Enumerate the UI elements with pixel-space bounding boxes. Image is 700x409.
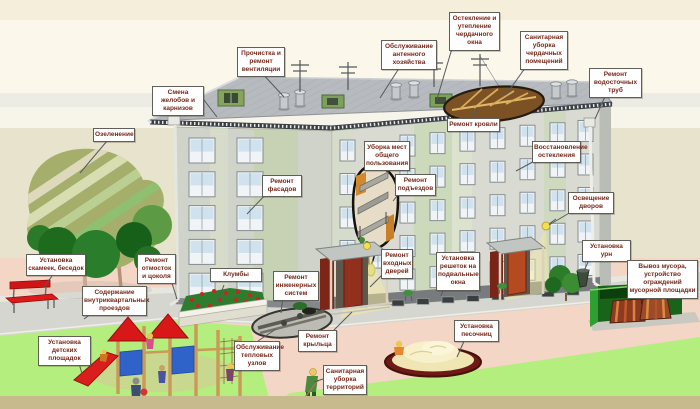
- label-osveshchenie-dvorov: Освещение дворов: [568, 192, 614, 214]
- label-remont-otmostok: Ремонт отмосток и цоколя: [137, 254, 176, 284]
- label-ustanovka-pesochnits: Установка песочниц: [454, 320, 499, 342]
- label-soderzhanie-proezdov: Содержание внутриквартальных проездов: [82, 286, 147, 316]
- label-remont-inzhenernyh: Ремонт инженерных систем: [273, 271, 319, 301]
- label-remont-fasadov: Ремонт фасадов: [262, 175, 302, 197]
- label-ustanovka-skameek: Установка скамеек, беседок: [26, 254, 86, 276]
- label-detskie-ploshchadki: Установка детских площадок: [38, 336, 91, 366]
- label-vyvoz-musora: Вывоз мусора, устройство ограждений мусо…: [627, 260, 698, 299]
- label-remont-podezdov: Ремонт подъездов: [395, 174, 436, 196]
- entrance-lamp: [364, 243, 371, 250]
- label-remont-krovli: Ремонт кровли: [447, 118, 500, 132]
- label-smena-zhelobov: Смена желобов и карнизов: [152, 86, 204, 116]
- yard-lamp: [542, 222, 550, 230]
- label-teplovye-uzly: Обслуживание тепловых узлов: [234, 341, 280, 371]
- gable-dormer: [218, 90, 244, 106]
- label-vodostochnye-truby: Ремонт водосточных труб: [589, 68, 642, 98]
- label-klumby: Клумбы: [210, 268, 262, 282]
- housing-maintenance-diagram: Смена желобов и карнизов Прочистка и рем…: [0, 0, 700, 409]
- dumpster: [640, 297, 671, 320]
- label-uborka-mest: Уборка мест общего пользования: [364, 141, 410, 171]
- label-remont-kryltsa: Ремонт крыльца: [298, 330, 337, 352]
- label-uborka-cherdachnyh: Санитарная уборка чердачных помещений: [520, 31, 568, 70]
- label-vosstanovlenie: Восстановление остекления: [532, 141, 581, 163]
- label-ozelenenie: Озеленение: [93, 128, 135, 142]
- label-reshetki: Установка решеток на подвальные окна: [436, 252, 480, 291]
- label-antennoe-hozyaystvo: Обслуживание антенного хозяйства: [381, 40, 437, 70]
- label-prochistka-ventilyacii: Прочистка и ремонт вентиляции: [237, 47, 285, 77]
- label-osteklenie-cherdaka: Остекление и утепление чердачного окна: [449, 12, 500, 51]
- bottom-strip: [0, 396, 700, 409]
- label-remont-vhodnyh-dverey: Ремонт входных дверей: [381, 249, 413, 279]
- label-uborka-territoriy: Санитарная уборка территорий: [323, 365, 367, 395]
- label-ustanovka-urn: Установка урн: [582, 240, 631, 262]
